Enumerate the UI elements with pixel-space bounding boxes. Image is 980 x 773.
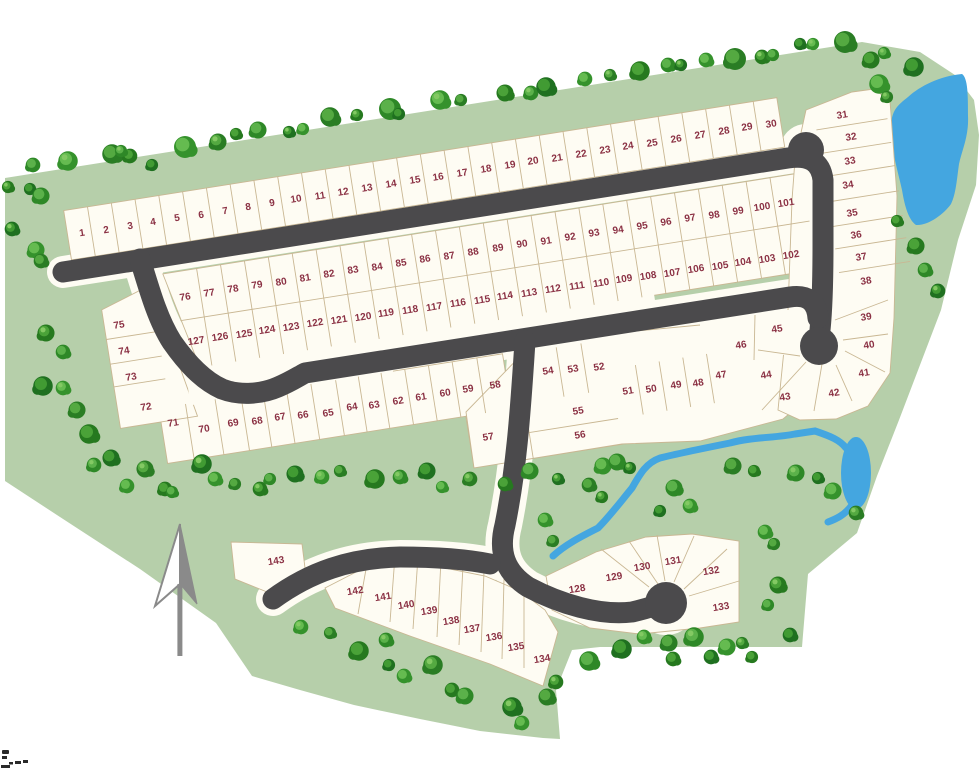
svg-text:78: 78 (227, 283, 240, 296)
svg-text:45: 45 (771, 323, 784, 336)
svg-text:39: 39 (860, 311, 873, 324)
svg-text:20: 20 (527, 155, 540, 168)
svg-text:91: 91 (540, 235, 553, 248)
svg-text:37: 37 (855, 251, 868, 264)
svg-text:25: 25 (646, 137, 659, 150)
svg-text:99: 99 (732, 205, 745, 218)
svg-text:77: 77 (203, 287, 216, 300)
svg-text:68: 68 (251, 415, 264, 428)
svg-text:59: 59 (462, 383, 475, 396)
svg-text:57: 57 (482, 431, 495, 444)
svg-text:89: 89 (492, 242, 505, 255)
svg-text:11: 11 (314, 190, 327, 203)
svg-text:98: 98 (708, 209, 721, 222)
svg-text:10: 10 (290, 193, 303, 206)
svg-text:71: 71 (167, 417, 180, 430)
svg-text:90: 90 (516, 238, 529, 251)
svg-text:16: 16 (432, 171, 445, 184)
svg-text:28: 28 (718, 125, 731, 138)
svg-text:64: 64 (346, 401, 359, 414)
svg-text:54: 54 (542, 365, 555, 378)
svg-text:85: 85 (395, 257, 408, 270)
svg-text:13: 13 (361, 182, 374, 195)
svg-text:40: 40 (863, 339, 876, 352)
svg-text:58: 58 (489, 379, 502, 392)
svg-text:84: 84 (371, 261, 384, 274)
svg-text:38: 38 (860, 275, 873, 288)
svg-text:66: 66 (297, 409, 310, 422)
svg-text:32: 32 (845, 131, 858, 144)
svg-text:46: 46 (735, 339, 748, 352)
svg-text:70: 70 (198, 423, 211, 436)
svg-text:15: 15 (409, 174, 422, 187)
svg-text:41: 41 (858, 367, 871, 380)
svg-text:61: 61 (415, 391, 428, 404)
svg-text:97: 97 (684, 212, 697, 225)
svg-text:87: 87 (443, 250, 456, 263)
svg-text:31: 31 (836, 109, 849, 122)
svg-text:82: 82 (323, 268, 336, 281)
svg-text:73: 73 (125, 371, 138, 384)
svg-text:81: 81 (299, 272, 312, 285)
svg-text:12: 12 (337, 186, 350, 199)
svg-text:76: 76 (179, 291, 192, 304)
svg-text:52: 52 (593, 361, 606, 374)
svg-text:55: 55 (572, 405, 585, 418)
svg-text:53: 53 (567, 363, 580, 376)
svg-text:92: 92 (564, 231, 577, 244)
svg-text:44: 44 (760, 369, 773, 382)
svg-text:19: 19 (504, 159, 517, 172)
svg-text:94: 94 (612, 224, 625, 237)
svg-text:14: 14 (385, 178, 398, 191)
svg-text:86: 86 (419, 253, 432, 266)
svg-text:79: 79 (251, 279, 264, 292)
svg-text:22: 22 (575, 148, 588, 161)
svg-text:65: 65 (322, 407, 335, 420)
svg-text:33: 33 (844, 155, 857, 168)
svg-text:34: 34 (842, 179, 855, 192)
svg-text:83: 83 (347, 264, 360, 277)
svg-text:62: 62 (392, 395, 405, 408)
svg-text:51: 51 (622, 385, 635, 398)
svg-text:36: 36 (850, 229, 863, 242)
svg-text:80: 80 (275, 276, 288, 289)
svg-text:26: 26 (670, 133, 683, 146)
svg-text:56: 56 (574, 429, 587, 442)
svg-text:63: 63 (368, 399, 381, 412)
svg-text:49: 49 (670, 379, 683, 392)
svg-text:72: 72 (140, 401, 153, 414)
svg-text:42: 42 (828, 387, 841, 400)
svg-text:67: 67 (274, 411, 287, 424)
svg-text:35: 35 (846, 207, 859, 220)
svg-text:21: 21 (551, 152, 564, 165)
svg-text:48: 48 (692, 377, 705, 390)
svg-text:29: 29 (741, 121, 754, 134)
svg-text:18: 18 (480, 163, 493, 176)
svg-text:74: 74 (118, 345, 131, 358)
svg-text:30: 30 (765, 118, 778, 131)
svg-text:47: 47 (715, 369, 728, 382)
svg-text:24: 24 (622, 140, 635, 153)
svg-text:60: 60 (439, 387, 452, 400)
svg-text:69: 69 (227, 417, 240, 430)
svg-text:96: 96 (660, 216, 673, 229)
svg-text:50: 50 (645, 383, 658, 396)
svg-text:23: 23 (599, 144, 612, 157)
svg-text:43: 43 (779, 391, 792, 404)
svg-text:17: 17 (456, 167, 469, 180)
svg-text:93: 93 (588, 227, 601, 240)
svg-text:27: 27 (694, 129, 707, 142)
svg-text:95: 95 (636, 220, 649, 233)
svg-text:75: 75 (113, 319, 126, 332)
svg-text:88: 88 (467, 246, 480, 259)
